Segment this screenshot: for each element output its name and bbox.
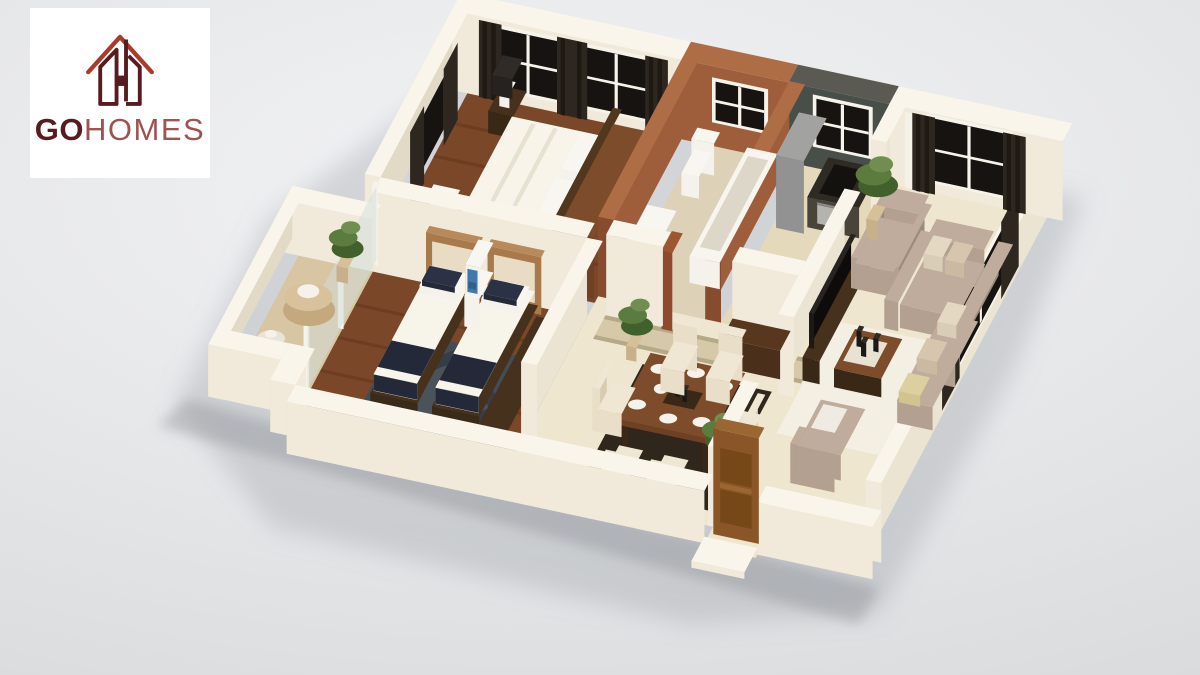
- balcony-pouf: [283, 283, 335, 326]
- render-stage: GOHOMES: [0, 0, 1200, 675]
- entrance-door: [713, 418, 764, 544]
- house-h-icon: [74, 24, 166, 110]
- logo-wordmark: GOHOMES: [35, 114, 205, 145]
- logo-text-go: GO: [35, 112, 84, 147]
- gohomes-logo: GOHOMES: [30, 8, 210, 178]
- logo-text-homes: HOMES: [84, 112, 205, 147]
